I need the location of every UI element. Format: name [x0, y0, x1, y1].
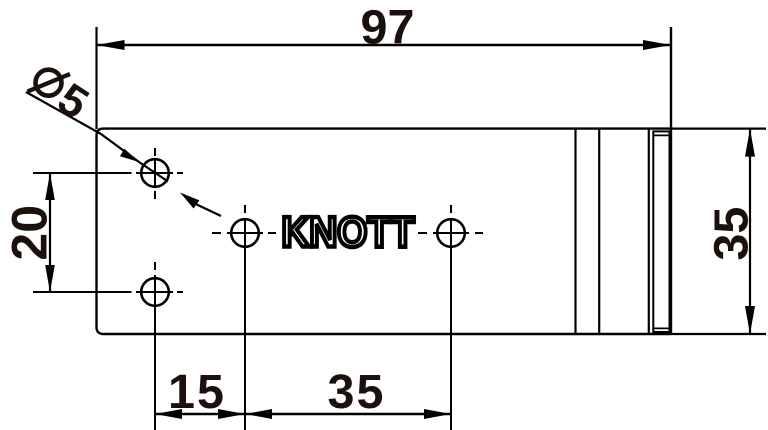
svg-text:35: 35 — [328, 365, 386, 419]
svg-text:97: 97 — [361, 1, 415, 55]
svg-text:20: 20 — [2, 205, 58, 261]
svg-text:15: 15 — [168, 365, 226, 419]
svg-text:35: 35 — [705, 207, 759, 261]
svg-text:KNOTT: KNOTT — [282, 209, 415, 257]
